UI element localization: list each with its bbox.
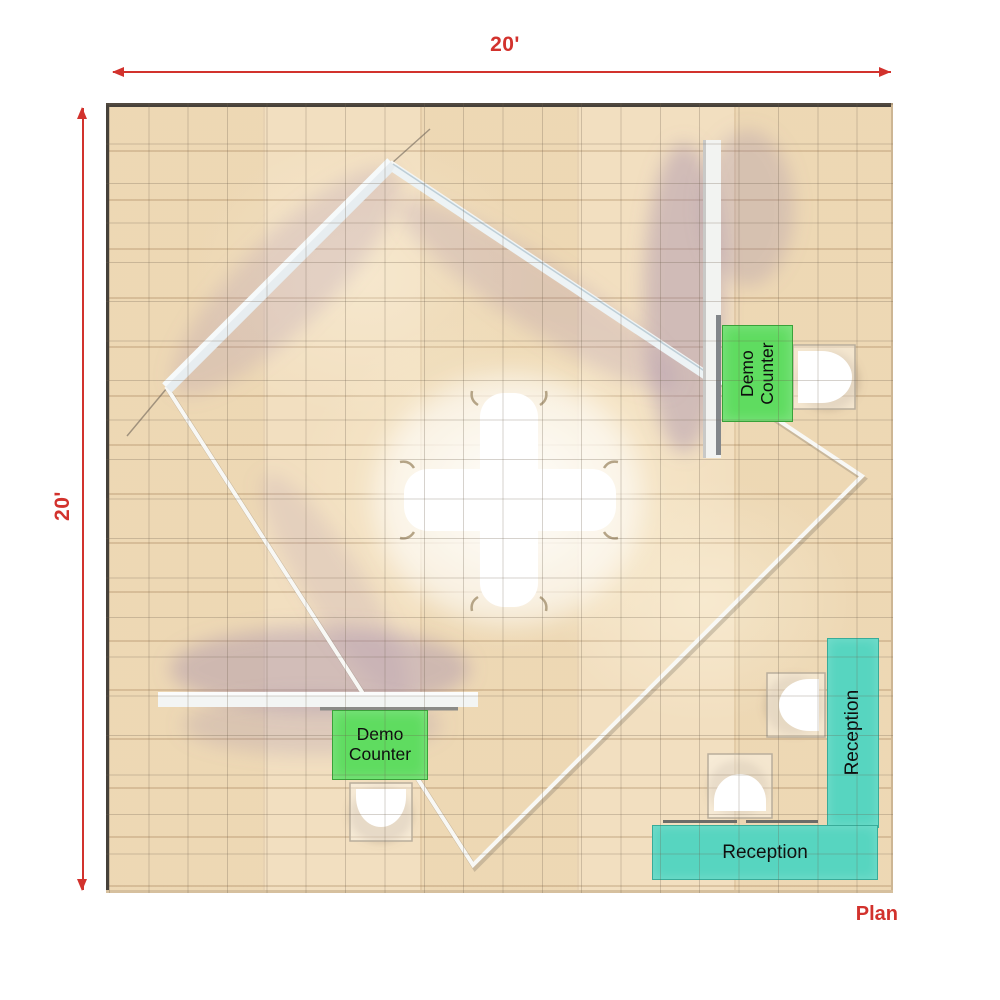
floor-edge-top <box>106 103 893 107</box>
plan-caption: Plan <box>828 903 898 926</box>
booth-structures <box>106 103 893 893</box>
floor-edge-left <box>106 103 109 893</box>
reception-counter-vertical: Reception <box>827 638 879 828</box>
demo-counter-right-label: Demo Counter <box>738 339 777 408</box>
wall-bottom-horizontal-highlight <box>158 692 478 696</box>
left-dimension-line <box>82 108 84 890</box>
corner-frame-line-top <box>392 129 430 163</box>
floor-plan-canvas: 20' 20' <box>0 0 1000 1000</box>
top-dimension-arrow-right <box>879 67 891 77</box>
demo-counter-right: Demo Counter <box>722 325 793 422</box>
wall-diagonal-top-left <box>167 163 392 388</box>
reception-vertical-label: Reception <box>842 690 863 776</box>
reception-horizontal-label: Reception <box>722 842 808 863</box>
corner-frame-line-left <box>127 388 167 436</box>
demo-counter-bottom-label: Demo Counter <box>337 725 423 764</box>
floor-edge-right <box>891 103 893 893</box>
wall-diagonal-top-left-highlight <box>164 160 389 385</box>
chair-reception-lower <box>708 754 772 818</box>
top-dimension-label: 20' <box>470 33 540 57</box>
top-dimension-line <box>113 71 891 73</box>
chair-reception-upper <box>764 673 825 737</box>
conference-table-cross <box>374 374 644 624</box>
reception-back-edge-right <box>746 820 818 823</box>
left-dimension-label: 20' <box>51 471 75 541</box>
wall-right-vertical-edge <box>703 140 706 458</box>
reception-back-edge-left <box>663 820 737 823</box>
chair-demo-bottom <box>349 783 413 843</box>
left-dimension-arrow-top <box>77 107 87 119</box>
left-dimension-arrow-bottom <box>77 879 87 891</box>
reception-counter-horizontal: Reception <box>652 825 878 880</box>
floor-edge-bottom <box>106 890 893 893</box>
wall-right-dark-strip <box>716 315 721 455</box>
chair-demo-right <box>793 345 860 411</box>
demo-counter-bottom: Demo Counter <box>332 710 428 780</box>
top-dimension-arrow-left <box>112 67 124 77</box>
